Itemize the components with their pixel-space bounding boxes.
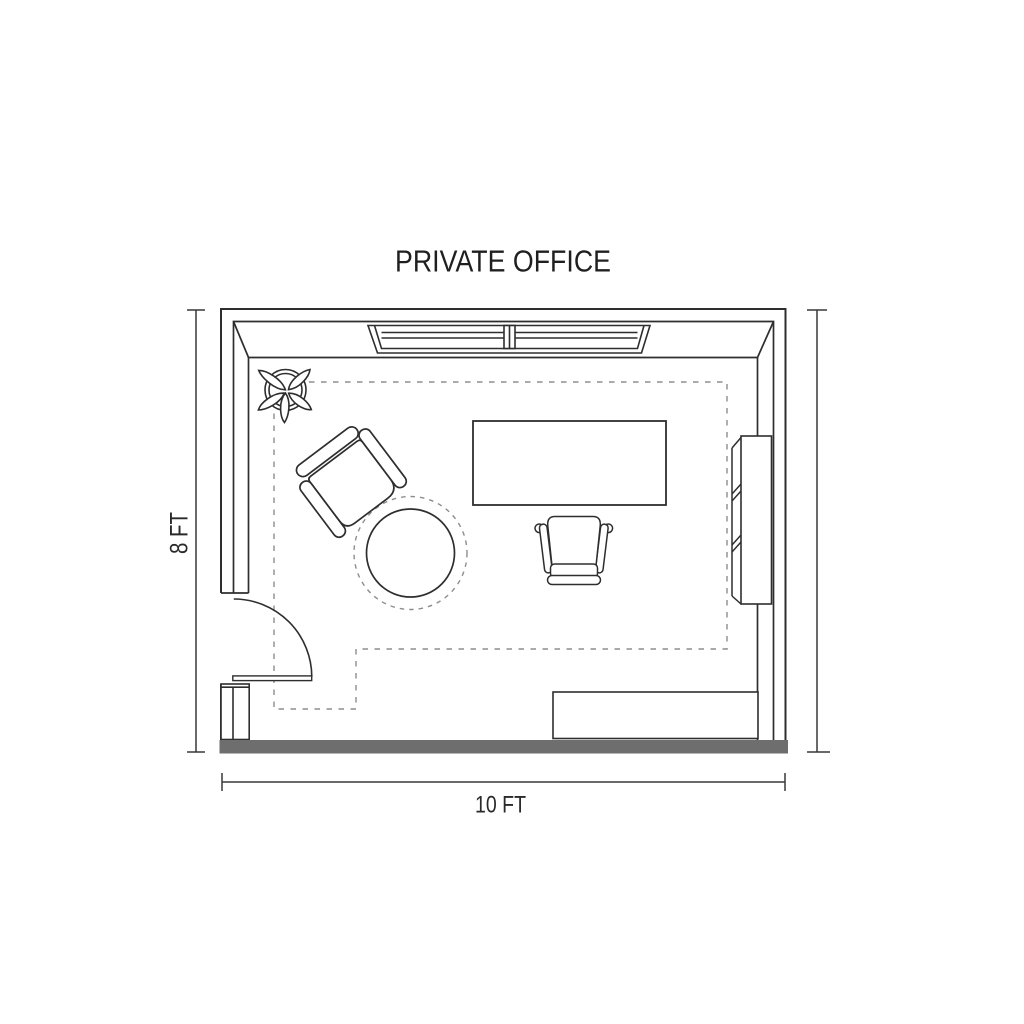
svg-text:10 FT: 10 FT	[475, 792, 526, 819]
svg-text:8 FT: 8 FT	[166, 512, 194, 554]
svg-text:PRIVATE OFFICE: PRIVATE OFFICE	[395, 244, 611, 279]
